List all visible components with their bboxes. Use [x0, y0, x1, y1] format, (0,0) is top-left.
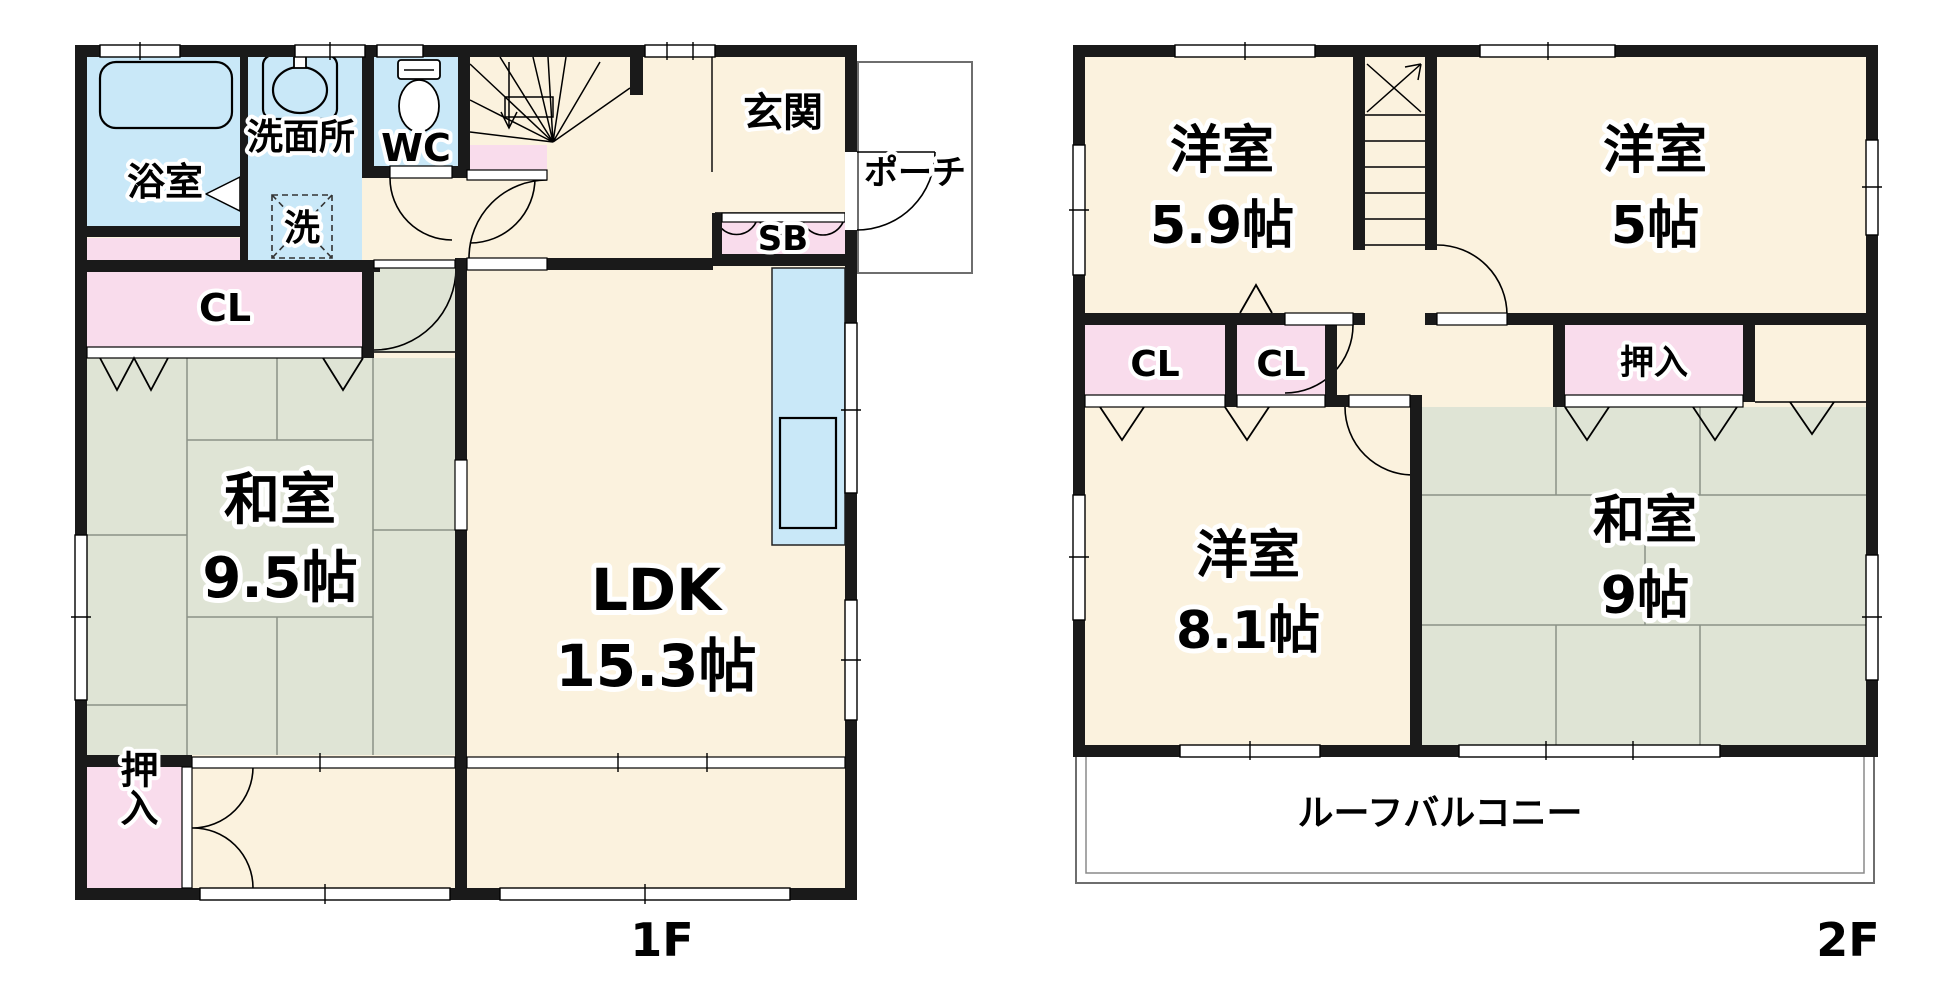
- label-oshiire-2f: 押入: [1620, 343, 1688, 383]
- label-laundry: 洗: [284, 208, 320, 249]
- under-stair-storage: [467, 145, 547, 170]
- toilet-icon: [398, 60, 440, 132]
- floor-label-2f: 2F: [1816, 913, 1879, 967]
- label-washroom: 洗面所: [247, 117, 355, 158]
- label-ldk: LDK: [591, 556, 723, 624]
- label-yoshitsu-a: 洋室: [1170, 121, 1274, 181]
- label-ldk-size: 15.3帖: [555, 632, 756, 700]
- floor-plan-drawing: 浴室 洗面所 洗 WC 玄関 ポーチ SB CL 和室 9.5帖 LDK 15.…: [0, 0, 1954, 1000]
- label-bathroom: 浴室: [127, 160, 203, 204]
- label-washitsu-2f: 和室: [1593, 491, 1697, 551]
- label-yoshitsu-b-size: 5帖: [1611, 196, 1699, 256]
- label-yoshitsu-a-size: 5.9帖: [1150, 196, 1294, 256]
- label-washitsu-2f-size: 9帖: [1601, 566, 1689, 626]
- label-closet-2f-a: CL: [1130, 344, 1179, 385]
- label-oshiire-1f: 押入: [114, 750, 158, 826]
- label-roof-balcony: ルーフバルコニー: [1297, 793, 1582, 834]
- label-yoshitsu-c-size: 8.1帖: [1176, 601, 1320, 661]
- linen-shelf: [87, 238, 240, 260]
- label-wc: WC: [381, 126, 451, 170]
- label-yoshitsu-c: 洋室: [1196, 526, 1300, 586]
- floor-label-1f: 1F: [630, 913, 693, 967]
- label-washitsu-1f: 和室: [224, 468, 336, 533]
- label-yoshitsu-b: 洋室: [1603, 121, 1707, 181]
- label-entrance: 玄関: [743, 90, 823, 136]
- entrance-opening: [845, 152, 857, 230]
- floor-1f-plan: 浴室 洗面所 洗 WC 玄関 ポーチ SB CL 和室 9.5帖 LDK 15.…: [71, 42, 972, 967]
- label-porch: ポーチ: [864, 153, 966, 193]
- floor-2f-plan: 洋室 5.9帖 洋室 5帖 CL CL 押入 洋室 8.1帖 和室 9帖 ルーフ…: [1069, 42, 1882, 967]
- label-shoebox: SB: [758, 219, 808, 259]
- label-closet-1f: CL: [199, 286, 251, 330]
- label-closet-2f-b: CL: [1256, 344, 1305, 385]
- kitchen-counter-icon: [772, 268, 845, 545]
- floor-plan-page: 浴室 洗面所 洗 WC 玄関 ポーチ SB CL 和室 9.5帖 LDK 15.…: [0, 0, 1954, 1000]
- label-washitsu-1f-size: 9.5帖: [202, 546, 357, 611]
